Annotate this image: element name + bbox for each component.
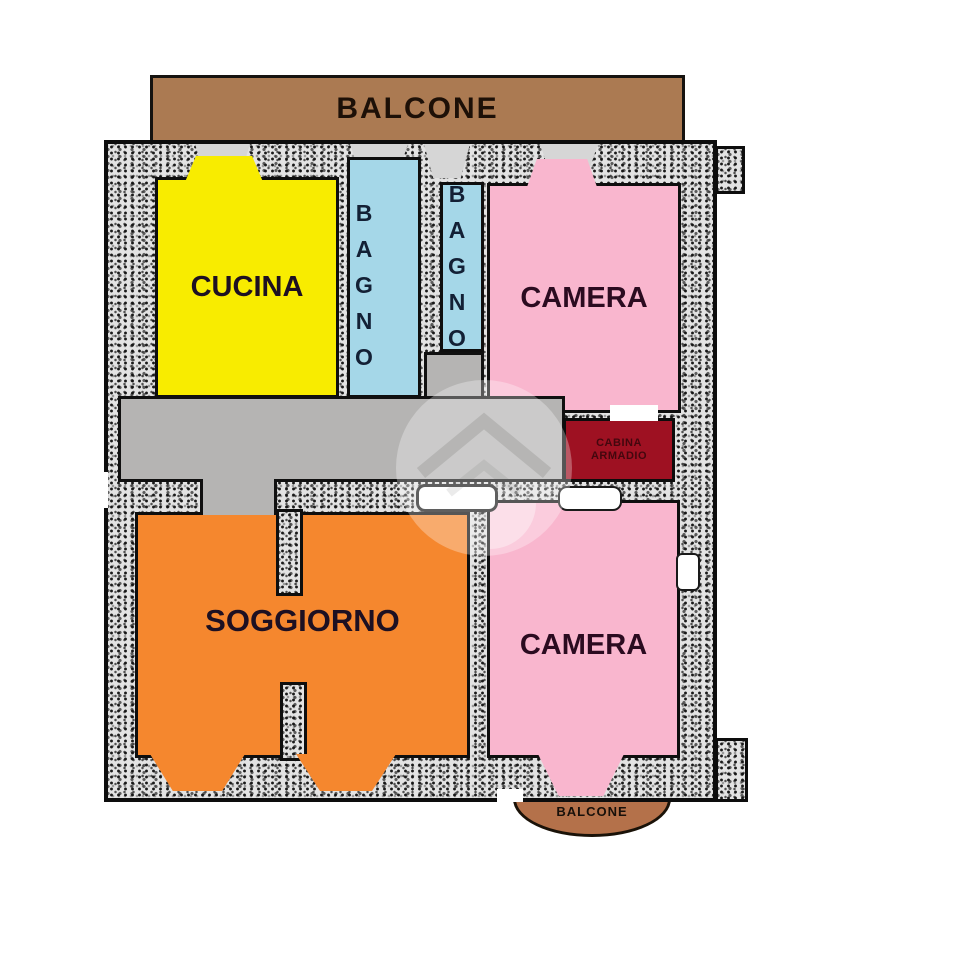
room-camera-top: CAMERA — [487, 183, 681, 413]
window-opening-right — [676, 553, 700, 591]
balcony-bottom: BALCONE — [513, 799, 671, 837]
room-bagno-1: BAGNO — [347, 157, 421, 398]
camera-top-window-notch — [527, 159, 597, 187]
wall-opening — [610, 405, 658, 421]
soggiorno-door-opening — [200, 479, 277, 515]
hallway — [118, 396, 565, 482]
cabina-armadio-label-line2: ARMADIO — [591, 450, 647, 463]
room-cabina-armadio: CABINA ARMADIO — [563, 418, 675, 482]
cucina-window-notch — [185, 156, 263, 182]
wall-step-top-right — [715, 146, 745, 194]
room-camera-top-label: CAMERA — [520, 282, 647, 315]
floorplan-canvas: BALCONE BALCONE CUCINA BAGNO BAGNO CAMER… — [0, 0, 969, 960]
room-camera-bottom-label: CAMERA — [520, 629, 647, 662]
balcony-bottom-label: BALCONE — [556, 804, 627, 819]
wall-step-bottom-right — [715, 738, 748, 802]
partition-stub-bottom — [280, 682, 307, 761]
door-leaf — [416, 484, 498, 512]
room-bagno-1-label: BAGNO — [350, 200, 377, 380]
cabina-armadio-label-line1: CABINA — [596, 437, 642, 450]
room-cucina: CUCINA — [155, 177, 339, 398]
partition-stub-top — [276, 509, 303, 596]
room-bagno-2: BAGNO — [440, 182, 484, 352]
door-leaf — [558, 486, 622, 511]
wall-opening-bottom — [497, 789, 523, 802]
balcony-top-label: BALCONE — [336, 92, 498, 126]
room-bagno-2-label: BAGNO — [443, 181, 470, 361]
room-cucina-label: CUCINA — [191, 271, 304, 304]
hallway-connector — [424, 352, 484, 400]
wall-opening-left — [92, 472, 108, 508]
room-soggiorno-label: SOGGIORNO — [205, 603, 400, 639]
balcony-top: BALCONE — [150, 75, 685, 143]
